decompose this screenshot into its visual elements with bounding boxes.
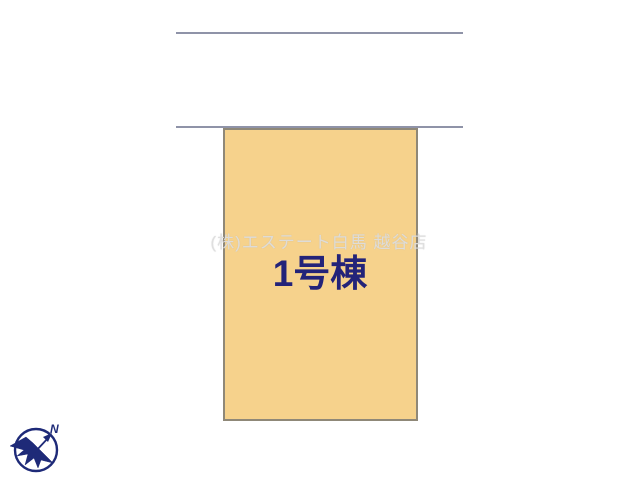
north-label: N [50,422,59,436]
site-plan-canvas: (株)エステート白馬 越谷店 1号棟 N [0,0,640,480]
lot-label: 1号棟 [273,255,368,294]
compass-north-icon: N [8,420,66,478]
road-edge-line-top [176,32,463,34]
